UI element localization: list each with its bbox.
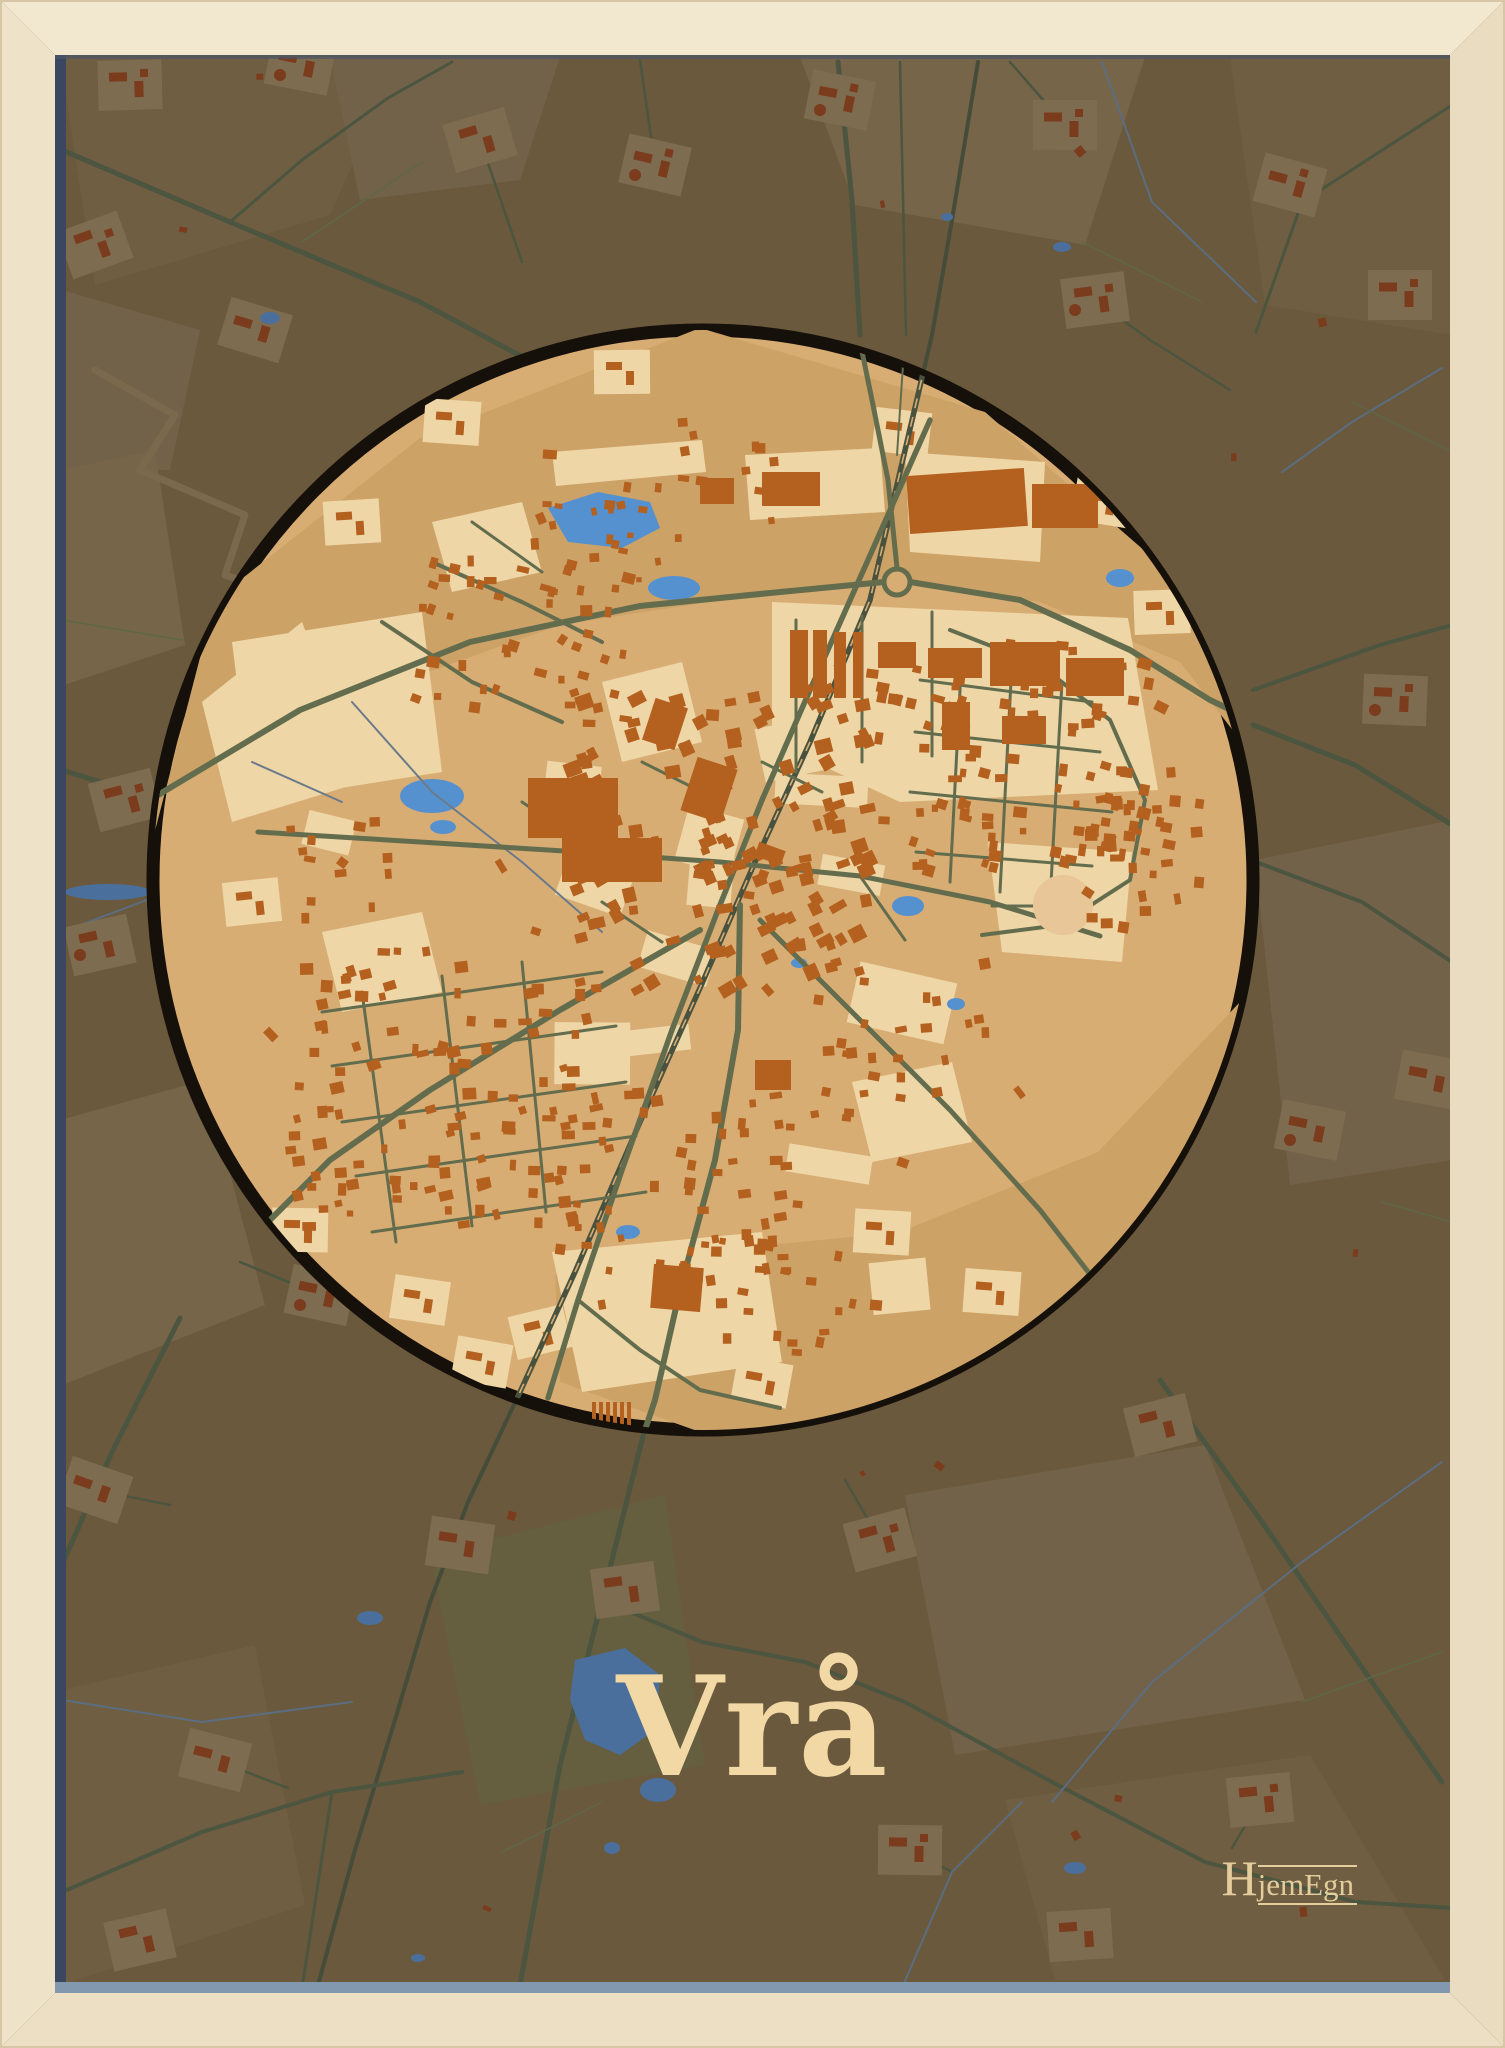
building: [752, 441, 760, 451]
building: [466, 1016, 475, 1027]
building: [335, 1067, 345, 1076]
building: [528, 1166, 540, 1175]
farm-cluster: [1060, 271, 1130, 329]
farm-building: [626, 371, 634, 385]
building: [978, 957, 991, 970]
building: [1006, 754, 1019, 765]
farm-building: [236, 891, 253, 901]
building: [410, 1182, 418, 1190]
building: [311, 1171, 321, 1182]
building: [439, 1167, 450, 1179]
building: [555, 1243, 566, 1255]
pond: [648, 576, 700, 600]
building: [445, 1206, 452, 1215]
building: [454, 961, 468, 974]
mat-shadow-bottom: [55, 1982, 1450, 1993]
building: [592, 702, 603, 713]
silo: [629, 169, 641, 181]
building: [754, 1244, 765, 1254]
farm-cluster: [878, 1825, 942, 1876]
building: [467, 556, 473, 567]
building: [728, 1158, 738, 1165]
building: [920, 1023, 932, 1033]
farm-building: [436, 411, 453, 420]
building: [744, 1235, 755, 1247]
farm-building: [1105, 284, 1114, 293]
building: [381, 1144, 387, 1153]
building: [1020, 682, 1029, 690]
building: [347, 1210, 353, 1216]
building: [285, 1146, 296, 1155]
farm-building: [976, 1281, 993, 1290]
building: [1190, 826, 1202, 838]
building: [1152, 805, 1162, 814]
building: [302, 1222, 316, 1231]
brand-logo-initial: H: [1221, 1853, 1257, 1903]
building: [1058, 763, 1068, 776]
building: [770, 1156, 783, 1165]
building: [458, 660, 466, 671]
brand-logo-rest: jemEgn: [1258, 1865, 1357, 1905]
building: [562, 1083, 576, 1091]
building: [434, 693, 441, 700]
building: [307, 835, 316, 845]
building: [839, 781, 855, 796]
building: [562, 1131, 575, 1140]
building: [307, 1183, 316, 1191]
building: [819, 1329, 829, 1336]
farm-building: [134, 81, 143, 97]
building: [655, 557, 662, 565]
building: [481, 1042, 493, 1055]
building: [558, 1196, 571, 1209]
building: [893, 1054, 903, 1062]
building: [860, 894, 873, 908]
building: [738, 1189, 752, 1199]
farm-yard: [97, 59, 162, 111]
farm-yard: [1368, 270, 1432, 320]
building: [939, 654, 952, 663]
building: [786, 1123, 795, 1130]
building: [1097, 846, 1104, 856]
pond: [357, 1611, 383, 1625]
farm-building: [1404, 291, 1413, 307]
building: [583, 720, 596, 728]
farm-cluster: [222, 877, 282, 927]
farm-building: [109, 72, 127, 82]
building: [813, 994, 824, 1005]
farm-cluster: [97, 59, 162, 111]
silo: [814, 104, 826, 116]
building: [554, 503, 562, 509]
farm-building: [456, 421, 465, 436]
building: [1139, 784, 1151, 797]
building: [577, 585, 585, 596]
building: [611, 540, 620, 550]
building: [701, 1241, 709, 1248]
pond: [430, 820, 456, 834]
building: [484, 577, 497, 584]
farm-building: [866, 1222, 882, 1231]
silo: [1069, 304, 1081, 316]
building: [1042, 687, 1054, 698]
building: [320, 980, 332, 993]
farm-building: [1069, 121, 1078, 137]
building: [754, 487, 765, 495]
building: [591, 984, 602, 993]
building: [860, 1019, 868, 1029]
farm-building: [1084, 1931, 1094, 1948]
building: [539, 1077, 547, 1087]
farm-building: [1044, 112, 1062, 121]
building: [1011, 671, 1021, 683]
building: [382, 853, 392, 863]
building: [544, 1172, 555, 1183]
building: [539, 1009, 553, 1018]
building: [494, 1019, 507, 1028]
building: [711, 1246, 722, 1256]
large-building: [762, 472, 820, 506]
building: [1087, 913, 1098, 922]
building: [1116, 766, 1127, 775]
building: [1068, 729, 1077, 736]
building: [607, 505, 613, 514]
mat-shadow-top: [55, 55, 1450, 59]
building: [1299, 1906, 1307, 1917]
building: [982, 821, 994, 829]
pond: [1064, 1862, 1086, 1874]
building: [919, 859, 928, 868]
farm-building: [914, 1846, 923, 1862]
building: [623, 482, 632, 493]
building: [713, 482, 724, 490]
building: [316, 998, 329, 1011]
building: [386, 1027, 399, 1037]
farm-building: [606, 362, 622, 370]
building: [518, 1018, 532, 1025]
building: [638, 506, 648, 514]
building: [1068, 647, 1077, 655]
building: [256, 74, 263, 80]
building: [689, 431, 698, 441]
building: [581, 1242, 592, 1249]
building: [530, 538, 539, 550]
farm-building: [1146, 602, 1162, 611]
building: [712, 1169, 722, 1176]
pond: [400, 779, 464, 813]
farm-yard: [323, 498, 382, 545]
building: [768, 517, 775, 525]
building: [1150, 871, 1157, 879]
silo: [294, 1299, 306, 1311]
building: [923, 992, 931, 1003]
building: [835, 1307, 842, 1315]
building: [1030, 688, 1038, 698]
building: [589, 553, 599, 562]
building: [859, 1090, 868, 1098]
farm-building: [889, 1837, 907, 1846]
building: [549, 521, 557, 530]
building: [806, 1277, 817, 1286]
farm-yard: [1033, 100, 1097, 150]
building: [534, 1217, 542, 1228]
building: [334, 1167, 347, 1178]
building: [557, 1165, 567, 1175]
pond: [1106, 569, 1134, 587]
building: [338, 1183, 347, 1196]
building: [769, 457, 779, 467]
building: [346, 1178, 360, 1190]
building: [1073, 800, 1079, 808]
building: [959, 768, 966, 777]
pond: [411, 1954, 425, 1962]
building: [470, 1132, 480, 1140]
building: [398, 1119, 406, 1129]
building: [705, 1275, 715, 1287]
building: [738, 1118, 746, 1130]
building: [598, 1136, 606, 1145]
building: [611, 584, 619, 592]
building: [680, 1260, 688, 1267]
building: [1129, 863, 1137, 874]
building: [959, 808, 969, 820]
silo: [274, 69, 286, 81]
building: [636, 577, 641, 582]
farm-building: [356, 521, 365, 535]
sports-field: [1033, 875, 1093, 935]
pond: [892, 896, 924, 916]
building: [995, 774, 1007, 782]
building: [1113, 798, 1123, 810]
building: [606, 1206, 612, 1215]
farm-building: [1374, 687, 1392, 697]
building: [697, 1207, 708, 1215]
frame-bottom: [0, 1993, 1505, 2048]
building: [430, 1155, 441, 1162]
building: [931, 1087, 943, 1098]
building: [1107, 840, 1116, 852]
farm-cluster: [590, 1561, 660, 1619]
farm-yard: [962, 1268, 1021, 1316]
building: [573, 1200, 581, 1208]
building: [319, 1205, 329, 1213]
building: [1117, 921, 1129, 934]
building: [567, 1066, 580, 1077]
large-building: [878, 642, 916, 668]
building: [870, 1299, 883, 1310]
building: [355, 991, 369, 1002]
building: [422, 946, 431, 956]
building: [685, 1134, 696, 1143]
building: [897, 1072, 905, 1082]
farm-yard: [878, 1825, 942, 1876]
farm-building: [140, 69, 148, 77]
large-building: [755, 1060, 791, 1090]
farm-building: [1075, 109, 1083, 117]
building: [689, 1278, 700, 1290]
frame-right: [1450, 0, 1505, 2048]
building: [846, 1047, 858, 1059]
building: [1352, 1249, 1358, 1257]
building: [575, 989, 585, 1001]
building: [866, 668, 879, 678]
building: [412, 1044, 419, 1056]
building: [823, 1046, 835, 1056]
building: [685, 1189, 693, 1196]
building: [543, 449, 558, 459]
building: [575, 1224, 582, 1231]
building: [989, 840, 998, 852]
pond: [947, 998, 965, 1010]
building: [888, 693, 903, 705]
farm-yard: [389, 1274, 451, 1326]
farm-cluster: [1033, 100, 1097, 150]
farm-cluster: [1362, 674, 1428, 727]
building: [1013, 806, 1028, 818]
pond: [260, 312, 280, 324]
building: [334, 869, 346, 878]
farm-cluster: [323, 498, 382, 545]
building: [1103, 689, 1112, 696]
building: [480, 684, 487, 694]
building: [1161, 859, 1173, 867]
building: [1068, 723, 1079, 730]
building: [1015, 716, 1023, 725]
building: [602, 1118, 612, 1129]
building: [426, 655, 440, 668]
building: [605, 1266, 612, 1274]
building: [392, 1195, 402, 1203]
building: [628, 824, 643, 839]
building: [1195, 799, 1205, 809]
building: [792, 1349, 802, 1356]
building: [774, 1120, 784, 1130]
building: [1046, 677, 1057, 688]
farm-building: [1059, 1922, 1078, 1932]
farm-yard: [1060, 271, 1130, 329]
farm-building: [336, 512, 352, 521]
pond: [65, 884, 151, 900]
building: [919, 744, 929, 753]
building: [1160, 822, 1173, 833]
building: [300, 963, 314, 975]
building: [1008, 707, 1015, 717]
building: [749, 1099, 756, 1107]
farm-building: [1379, 282, 1397, 291]
building: [475, 1205, 484, 1217]
building: [969, 745, 981, 758]
building: [982, 813, 994, 821]
farm-yard: [425, 1516, 496, 1575]
building: [680, 446, 690, 457]
building: [675, 534, 682, 542]
building: [307, 897, 316, 906]
building: [419, 604, 427, 612]
building: [353, 821, 366, 832]
farm-yard: [853, 1208, 912, 1255]
building: [1123, 831, 1135, 842]
building: [777, 1254, 788, 1260]
farm-cluster: [423, 398, 482, 446]
building: [317, 1106, 328, 1119]
pond: [1053, 242, 1071, 252]
building: [1049, 846, 1062, 859]
building: [467, 576, 475, 587]
building: [369, 902, 375, 912]
building: [394, 947, 402, 954]
building: [1169, 795, 1181, 807]
building: [768, 1235, 778, 1247]
building: [301, 913, 309, 924]
building: [528, 1188, 538, 1198]
building: [676, 1146, 688, 1158]
farm-building: [1166, 611, 1174, 625]
farm-building: [920, 1834, 928, 1842]
building: [718, 1128, 726, 1139]
building: [650, 1181, 659, 1192]
building: [488, 1091, 498, 1102]
building: [831, 819, 847, 834]
building: [1113, 663, 1127, 671]
building: [868, 1053, 877, 1064]
building: [1090, 823, 1100, 833]
farm-yard: [1046, 1908, 1113, 1962]
building: [1056, 641, 1069, 651]
building: [842, 1114, 852, 1122]
building: [974, 1014, 985, 1024]
farm-cluster: [594, 350, 650, 394]
building: [687, 1160, 697, 1171]
building: [793, 1200, 803, 1208]
building: [747, 691, 761, 704]
building: [558, 676, 564, 684]
building: [289, 1131, 301, 1140]
pond: [604, 1842, 620, 1854]
building: [580, 605, 592, 617]
building: [1128, 696, 1140, 706]
building: [810, 1110, 819, 1118]
building: [565, 702, 576, 709]
building: [712, 1112, 722, 1124]
building: [542, 501, 551, 508]
building: [510, 1160, 517, 1171]
building: [582, 1122, 595, 1130]
building: [859, 977, 869, 985]
building: [509, 1094, 518, 1101]
farm-building: [849, 83, 858, 92]
building: [719, 1237, 726, 1244]
building: [716, 1298, 727, 1308]
large-building: [853, 632, 863, 698]
building: [572, 1030, 580, 1039]
building: [741, 466, 750, 475]
farm-yard: [423, 398, 482, 446]
farm-building: [1264, 1796, 1275, 1813]
building: [639, 1107, 649, 1118]
building: [546, 599, 553, 608]
building: [1231, 453, 1236, 461]
building: [787, 1339, 797, 1347]
framed-map-poster: Vrå HjemEgn: [0, 0, 1505, 2048]
farm-building: [1410, 279, 1418, 287]
building: [1127, 800, 1135, 810]
silo: [1369, 704, 1381, 716]
building: [353, 1160, 364, 1168]
large-building: [1032, 484, 1098, 528]
building: [310, 1048, 320, 1057]
farm-cluster: [853, 1208, 912, 1255]
building: [629, 905, 639, 915]
